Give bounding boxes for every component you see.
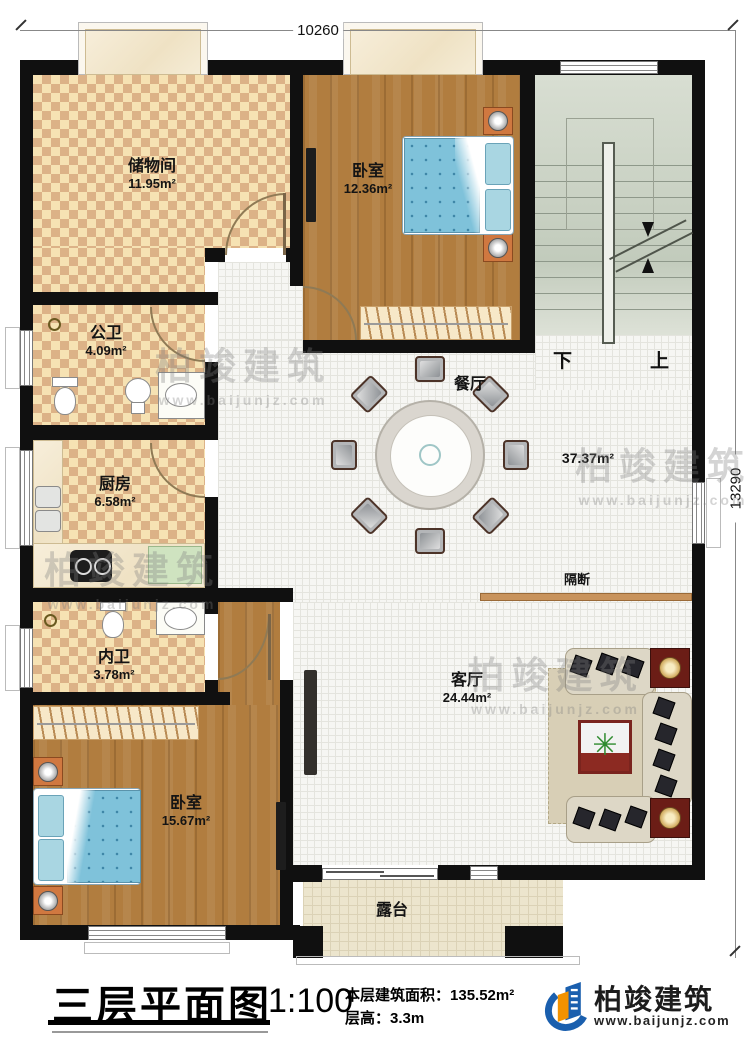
- room-name: 储物间: [128, 158, 176, 176]
- dining-chair: [415, 528, 445, 554]
- living-label: 客厅 24.44m²: [443, 672, 491, 706]
- drawing-scale: 1:100: [268, 982, 353, 1021]
- room-name: 内卫: [93, 649, 134, 667]
- coffee-table: ✳: [578, 720, 632, 774]
- bedroom-main-label: 卧室 15.67m²: [162, 795, 210, 829]
- nightstand: [33, 757, 63, 786]
- wall: [520, 75, 535, 353]
- storage-room-label: 储物间 11.95m²: [128, 158, 176, 192]
- pedestal-sink-base: [131, 402, 145, 414]
- window: [470, 866, 498, 880]
- bedroom-top-label: 卧室 12.36m²: [344, 163, 392, 197]
- wall: [205, 248, 225, 262]
- wall: [205, 602, 218, 614]
- toilet-tank: [52, 377, 78, 387]
- window: [560, 61, 658, 74]
- stair-direction-arrow-down-icon: [642, 222, 654, 237]
- ceiling-lamp-icon: [44, 614, 57, 627]
- room-name: 隔断: [564, 572, 590, 588]
- console-cabinet: [304, 670, 317, 775]
- hall-area-label: 37.37m²: [562, 450, 614, 467]
- plant-icon: ✳: [592, 731, 617, 761]
- stair-direction-arrow-up-icon: [642, 258, 654, 273]
- wall: [20, 425, 218, 440]
- cushion: [652, 748, 675, 771]
- terrace-label: 露台: [376, 902, 408, 920]
- window-sill: [706, 478, 721, 548]
- room-name: 厨房: [94, 476, 135, 494]
- window: [20, 628, 33, 688]
- dimension-tick: [727, 19, 738, 30]
- window: [20, 450, 33, 546]
- partition-label: 隔断: [564, 572, 590, 588]
- window-sill: [84, 942, 230, 954]
- room-name: 卧室: [162, 795, 210, 813]
- sliding-door-panel: [326, 871, 384, 873]
- bed-fold: [67, 790, 95, 883]
- stair-rail: [602, 142, 615, 344]
- sofa: [565, 648, 655, 695]
- stair-down-label: 下: [553, 346, 572, 373]
- wall: [303, 340, 535, 353]
- stove: [70, 550, 112, 582]
- dimension-top-value: 10260: [293, 22, 343, 39]
- company-website: www.baijunjz.com: [594, 1013, 730, 1028]
- table-lamp-icon: [659, 657, 681, 679]
- toilet: [54, 387, 76, 415]
- sofa: [566, 796, 656, 843]
- sliding-door-panel: [380, 875, 434, 877]
- room-name: 客厅: [443, 672, 491, 690]
- table-lamp-icon: [659, 807, 681, 829]
- title-underline-thin: [52, 1031, 268, 1033]
- wall: [20, 588, 293, 602]
- room-area: 4.09m²: [85, 343, 126, 359]
- cushion: [654, 722, 677, 745]
- window: [88, 926, 226, 940]
- room-area: 37.37m²: [562, 450, 614, 467]
- wall: [293, 865, 322, 882]
- sofa: [642, 692, 692, 806]
- floor-height-value: 3.3m: [390, 1010, 424, 1027]
- room-area: 24.44m²: [443, 690, 491, 706]
- pillow: [485, 189, 511, 231]
- bed: [402, 136, 514, 235]
- floor-plan-canvas: 10260 13290 下 上: [0, 0, 750, 1046]
- pillow: [485, 143, 511, 185]
- public-bath-label: 公卫 4.09m²: [85, 325, 126, 359]
- window-sill: [5, 327, 20, 389]
- wardrobe: [360, 306, 512, 340]
- door-leaf: [268, 614, 271, 680]
- room-area: 11.95m²: [128, 176, 176, 192]
- lazy-susan: [419, 444, 441, 466]
- dining-chair: [331, 440, 357, 470]
- wall: [692, 60, 705, 880]
- wall: [20, 292, 218, 305]
- dining-label: 餐厅: [454, 376, 486, 394]
- tv: [276, 802, 286, 870]
- cushion: [598, 808, 621, 831]
- burner-icon: [94, 558, 111, 575]
- sink: [164, 607, 197, 630]
- bed-fold: [455, 138, 483, 233]
- ceiling-lamp-icon: [48, 318, 61, 331]
- window: [20, 330, 33, 386]
- cushion: [595, 652, 618, 675]
- kitchen-sink-basin: [35, 510, 61, 532]
- bay-window: [85, 29, 201, 75]
- pedestal-sink: [125, 378, 151, 404]
- cushion: [654, 774, 677, 797]
- toilet: [102, 611, 124, 638]
- cutting-board: [148, 546, 202, 584]
- cushion: [652, 696, 675, 719]
- window-sill: [5, 447, 20, 549]
- wardrobe: [33, 706, 199, 740]
- bay-window: [350, 29, 476, 75]
- dining-table: [375, 400, 485, 510]
- dimension-line-top: [20, 30, 735, 31]
- dimension-right-value: 13290: [728, 455, 745, 523]
- bed: [33, 788, 141, 885]
- room-area: 3.78m²: [93, 667, 134, 683]
- floor-height-line: 层高：3.3m: [345, 1007, 424, 1028]
- ensuite-bath-label: 内卫 3.78m²: [93, 649, 134, 683]
- wall: [205, 680, 218, 692]
- cushion: [569, 654, 592, 677]
- partition-bar: [480, 593, 692, 601]
- sink: [165, 383, 197, 407]
- cushion: [572, 806, 595, 829]
- wall: [286, 248, 303, 262]
- nightstand: [33, 886, 63, 915]
- door-leaf: [283, 193, 286, 255]
- nightstand: [483, 107, 513, 135]
- storage-room-floor: [33, 248, 205, 292]
- nightstand: [483, 234, 513, 262]
- wall: [20, 692, 230, 705]
- room-area: 6.58m²: [94, 494, 135, 510]
- cushion: [624, 805, 647, 828]
- room-area: 12.36m²: [344, 181, 392, 197]
- dining-chair: [415, 356, 445, 382]
- room-name: 餐厅: [454, 376, 486, 394]
- side-table: [650, 798, 690, 838]
- tv: [306, 148, 316, 222]
- burner-icon: [75, 558, 92, 575]
- window: [692, 482, 705, 544]
- window-sill: [5, 625, 20, 691]
- sliding-door: [322, 868, 438, 880]
- side-table: [650, 648, 690, 688]
- kitchen-sink-basin: [35, 486, 61, 508]
- kitchen-label: 厨房 6.58m²: [94, 476, 135, 510]
- floor-area-value: 135.52m²: [450, 987, 514, 1004]
- cushion: [621, 655, 644, 678]
- room-name: 公卫: [85, 325, 126, 343]
- dining-chair: [503, 440, 529, 470]
- company-name: 柏竣建筑: [594, 978, 714, 1018]
- wall-corner-post: [505, 926, 563, 958]
- terrace-edge-frame: [296, 956, 580, 965]
- toilet-tank: [100, 602, 126, 611]
- pillow: [38, 795, 64, 837]
- room-name: 露台: [376, 902, 408, 920]
- wall: [205, 497, 218, 602]
- stair-up-label: 上: [650, 346, 669, 373]
- dimension-tick: [15, 19, 26, 30]
- title-underline: [48, 1020, 270, 1025]
- wall: [205, 292, 218, 305]
- company-logo-icon: [544, 978, 590, 1032]
- floor-height-label: 层高：: [345, 1010, 390, 1027]
- room-name: 卧室: [344, 163, 392, 181]
- floor-area-label: 本层建筑面积：: [345, 987, 450, 1004]
- pillow: [38, 839, 64, 881]
- wall-corner-post: [293, 926, 323, 958]
- room-area: 15.67m²: [162, 813, 210, 829]
- floor-area-line: 本层建筑面积：135.52m²: [345, 984, 514, 1005]
